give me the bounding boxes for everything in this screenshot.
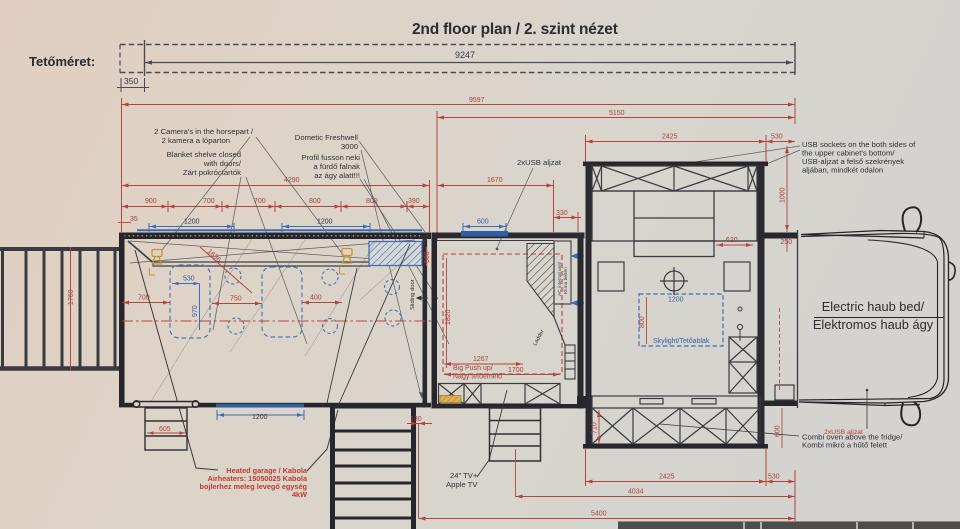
svg-text:a fürdő falnak: a fürdő falnak — [313, 162, 360, 171]
svg-text:2425: 2425 — [659, 474, 675, 481]
svg-text:1267: 1267 — [473, 356, 489, 363]
svg-text:2nd floor plan / 2. szint néze: 2nd floor plan / 2. szint nézet — [412, 21, 618, 38]
svg-text:250: 250 — [781, 239, 793, 246]
svg-text:Klíma beltéri: Klíma beltéri — [563, 267, 569, 294]
svg-text:330: 330 — [556, 210, 568, 217]
svg-text:970: 970 — [192, 305, 199, 317]
svg-text:with doors/: with doors/ — [203, 159, 242, 168]
svg-text:1200: 1200 — [668, 297, 684, 304]
svg-text:600: 600 — [775, 425, 782, 437]
svg-text:350: 350 — [124, 76, 138, 86]
svg-text:750: 750 — [230, 296, 242, 303]
svg-text:1670: 1670 — [487, 177, 503, 184]
svg-text:530: 530 — [183, 276, 195, 283]
svg-text:bojlerhez meleg levegő egység: bojlerhez meleg levegő egység — [200, 482, 307, 491]
svg-text:3000: 3000 — [341, 142, 358, 151]
svg-text:Kombi mikró a hűtő felett: Kombi mikró a hűtő felett — [802, 441, 888, 450]
svg-text:9597: 9597 — [469, 97, 485, 104]
svg-text:1760: 1760 — [68, 289, 75, 305]
svg-text:Big Push up/: Big Push up/ — [453, 365, 493, 372]
svg-text:2 kamera a lóparton: 2 kamera a lóparton — [162, 136, 230, 145]
svg-text:Tetőméret:: Tetőméret: — [29, 54, 95, 69]
svg-text:Profil fusson neki: Profil fusson neki — [301, 153, 360, 162]
svg-text:1200: 1200 — [252, 414, 268, 421]
svg-text:35: 35 — [130, 216, 138, 223]
svg-text:600: 600 — [477, 219, 489, 226]
svg-text:400: 400 — [310, 295, 322, 302]
svg-text:1200: 1200 — [184, 219, 200, 226]
svg-text:530: 530 — [768, 474, 780, 481]
svg-text:1700: 1700 — [508, 367, 524, 374]
svg-text:24” TV+: 24” TV+ — [450, 471, 478, 480]
svg-text:700: 700 — [203, 198, 215, 205]
svg-text:Nagy tetőemelő: Nagy tetőemelő — [453, 374, 502, 381]
svg-text:Skylight/Tetőablak: Skylight/Tetőablak — [653, 338, 710, 345]
svg-text:530: 530 — [771, 134, 783, 141]
svg-text:900: 900 — [145, 198, 157, 205]
svg-text:Blanket shelve closed: Blanket shelve closed — [167, 150, 241, 159]
svg-text:1000: 1000 — [780, 187, 787, 203]
svg-text:800: 800 — [309, 198, 321, 205]
svg-text:Apple TV: Apple TV — [446, 480, 478, 489]
svg-text:390: 390 — [408, 198, 420, 205]
svg-text:2425: 2425 — [662, 134, 678, 141]
svg-text:az ágy alatt!!!: az ágy alatt!!! — [314, 171, 360, 180]
svg-text:800: 800 — [639, 316, 646, 328]
svg-text:Elektromos haub ágy: Elektromos haub ágy — [813, 317, 934, 332]
svg-text:5150: 5150 — [609, 110, 625, 117]
svg-text:2xUSB aljzat: 2xUSB aljzat — [517, 158, 562, 167]
svg-text:5400: 5400 — [591, 511, 607, 518]
svg-text:Dometic Freshwell: Dometic Freshwell — [295, 133, 359, 142]
svg-text:620: 620 — [726, 237, 738, 244]
svg-text:Sliding door: Sliding door — [410, 279, 416, 310]
svg-text:605: 605 — [159, 426, 171, 433]
svg-text:4kW: 4kW — [292, 490, 307, 499]
svg-text:Electric haub bed/: Electric haub bed/ — [822, 299, 925, 314]
svg-text:1820: 1820 — [445, 309, 452, 325]
svg-text:130: 130 — [410, 416, 422, 423]
svg-text:9247: 9247 — [455, 50, 475, 60]
svg-text:aljában, mindkét odalon: aljában, mindkét odalon — [802, 166, 883, 175]
svg-text:2 Camera's in the horsepart /: 2 Camera's in the horsepart / — [154, 127, 254, 136]
svg-text:710: 710 — [592, 422, 599, 434]
svg-text:500: 500 — [424, 251, 431, 263]
svg-text:1200: 1200 — [317, 219, 333, 226]
svg-text:AC internal unit/: AC internal unit/ — [557, 261, 563, 296]
svg-text:Zárt pokróctartók: Zárt pokróctartók — [183, 168, 241, 177]
svg-text:4034: 4034 — [628, 489, 644, 496]
